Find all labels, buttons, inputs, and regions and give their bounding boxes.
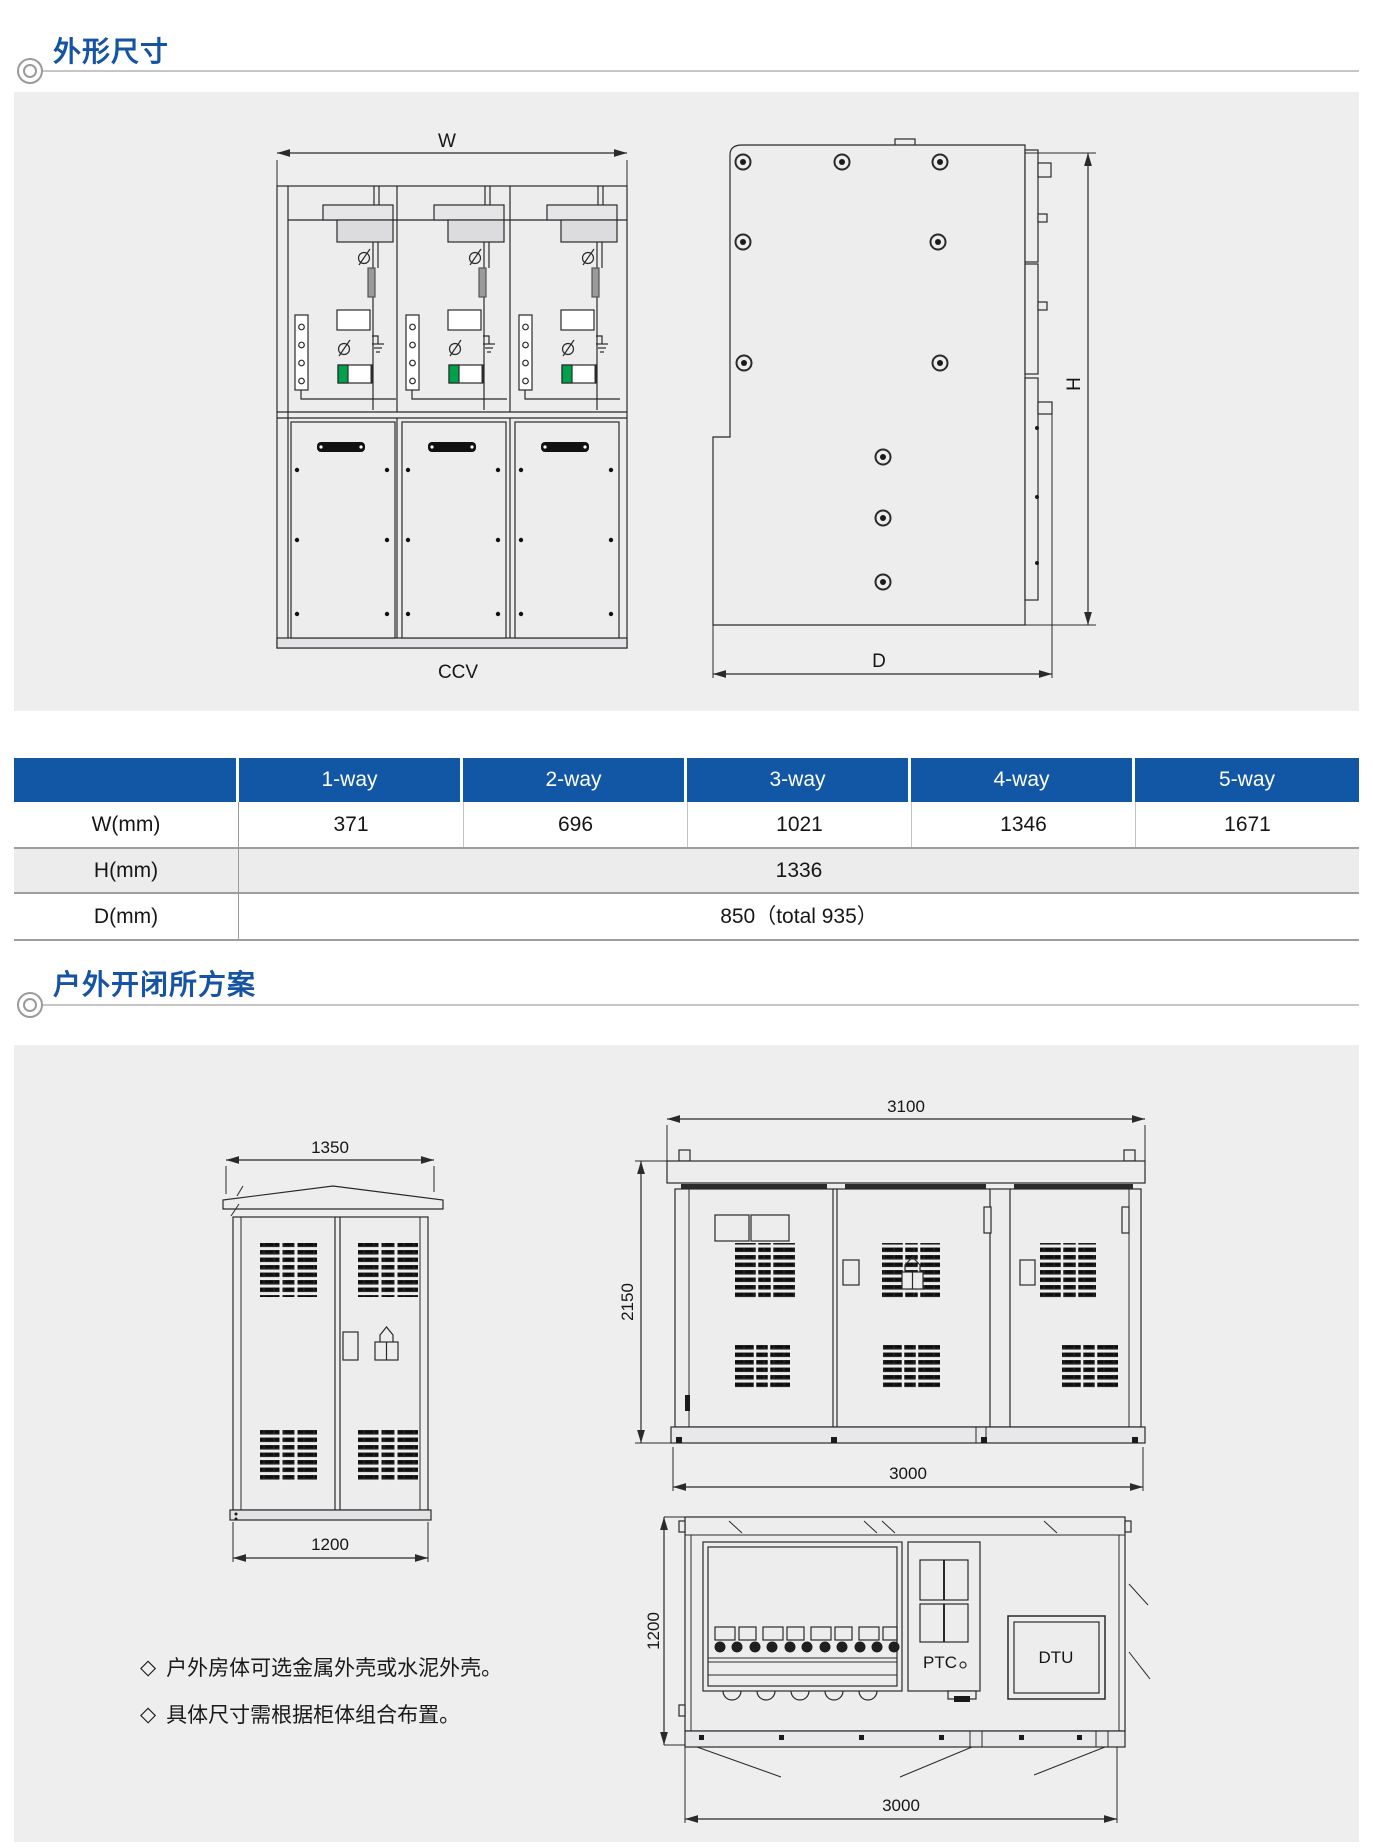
table-header-row: 1-way 2-way 3-way 4-way 5-way: [14, 758, 1359, 802]
cable-door: [291, 422, 395, 638]
switchgear-cabinet-side: [713, 139, 1052, 625]
bottom-dimension-1200: 1200: [233, 1522, 428, 1562]
left-dimension-2150: 2150: [618, 1161, 671, 1443]
table-header-cell: 2-way: [463, 758, 687, 802]
table-cell: 696: [463, 802, 687, 847]
top-dimension-3100: 3100: [667, 1097, 1145, 1161]
door-handle: [843, 1260, 859, 1285]
switchgear-assembly: [703, 1542, 902, 1700]
table-header-cell: [14, 758, 239, 802]
note-item: ◇ 户外房体可选金属外壳或水泥外壳。: [140, 1652, 502, 1682]
cable-door: [515, 422, 619, 638]
dimension-label: 3000: [882, 1796, 920, 1815]
front-view-caption: CCV: [438, 662, 478, 682]
dimension-label: 1350: [311, 1138, 349, 1157]
door-handle: [1020, 1260, 1035, 1285]
table-header-cell: 5-way: [1135, 758, 1359, 802]
table-cell-span: 1336: [239, 849, 1359, 892]
section1-title: 外形尺寸: [53, 30, 169, 70]
dimension-label: 1200: [311, 1535, 349, 1554]
section1-ring-icon: [17, 58, 43, 84]
h-dimension-label: H: [1064, 377, 1085, 391]
outline-drawings-panel: W CCV: [14, 92, 1359, 711]
note-text: 户外房体可选金属外壳或水泥外壳。: [166, 1652, 502, 1682]
side-view-drawing: H D: [704, 122, 1124, 692]
door-handle: [1122, 1207, 1129, 1233]
door-handle: [984, 1207, 991, 1233]
dtu-unit: DTU: [1008, 1616, 1105, 1699]
table-cell: 1671: [1135, 802, 1359, 847]
table-cell: 1346: [911, 802, 1135, 847]
section1-rule: [40, 70, 1359, 72]
cable-door: [402, 422, 506, 638]
dtu-label: DTU: [1039, 1648, 1074, 1667]
w-dimension: W: [277, 131, 627, 186]
table-header-cell: 4-way: [911, 758, 1135, 802]
diamond-bullet-icon: ◇: [140, 1702, 156, 1727]
note-item: ◇ 具体尺寸需根据柜体组合布置。: [140, 1699, 460, 1729]
dimension-label: 3000: [889, 1464, 927, 1483]
table-row-height: H(mm) 1336: [14, 847, 1359, 894]
ptc-label: PTC: [923, 1653, 957, 1672]
row-label: D(mm): [14, 894, 239, 939]
ptc-unit: PTC: [908, 1542, 980, 1702]
bottom-dimension-3000: 3000: [673, 1447, 1143, 1491]
cabinet-body: [223, 1186, 443, 1521]
dimension-label: 2150: [618, 1283, 637, 1321]
section2-title: 户外开闭所方案: [53, 963, 256, 1003]
bottom-dimension-3000: 3000: [685, 1747, 1117, 1823]
outdoor-station-panel: 1350: [14, 1045, 1359, 1842]
d-dimension-label: D: [872, 651, 886, 672]
switchgear-cabinet-front: [277, 186, 627, 648]
front-view-drawing: W CCV: [269, 122, 639, 682]
table-cell: 1021: [687, 802, 911, 847]
table-cell-span: 850（total 935）: [239, 894, 1359, 939]
row-label: H(mm): [14, 849, 239, 892]
station-body: [667, 1150, 1145, 1443]
w-dimension-label: W: [438, 131, 456, 152]
dimension-label: 3100: [887, 1097, 925, 1116]
table-row-width: W(mm) 371 696 1021 1346 1671: [14, 802, 1359, 847]
section2-rule: [40, 1004, 1359, 1006]
station-front-drawing: 3100 2150: [614, 1060, 1174, 1500]
top-dimension-1350: 1350: [226, 1138, 434, 1194]
table-row-depth: D(mm) 850（total 935）: [14, 894, 1359, 941]
table-header-cell: 1-way: [239, 758, 463, 802]
outdoor-cabinet-drawing: 1350: [214, 1130, 454, 1580]
table-header-cell: 3-way: [687, 758, 911, 802]
dimension-table: 1-way 2-way 3-way 4-way 5-way W(mm) 371 …: [14, 758, 1359, 941]
station-plan-drawing: PTC DTU: [614, 1495, 1174, 1840]
diamond-bullet-icon: ◇: [140, 1655, 156, 1680]
row-label: W(mm): [14, 802, 239, 847]
datasheet-page: 外形尺寸: [0, 0, 1373, 1848]
table-cell: 371: [239, 802, 463, 847]
note-text: 具体尺寸需根据柜体组合布置。: [166, 1699, 460, 1729]
door-handle: [343, 1332, 358, 1360]
section2-ring-icon: [17, 992, 43, 1018]
dimension-label: 1200: [644, 1612, 663, 1650]
